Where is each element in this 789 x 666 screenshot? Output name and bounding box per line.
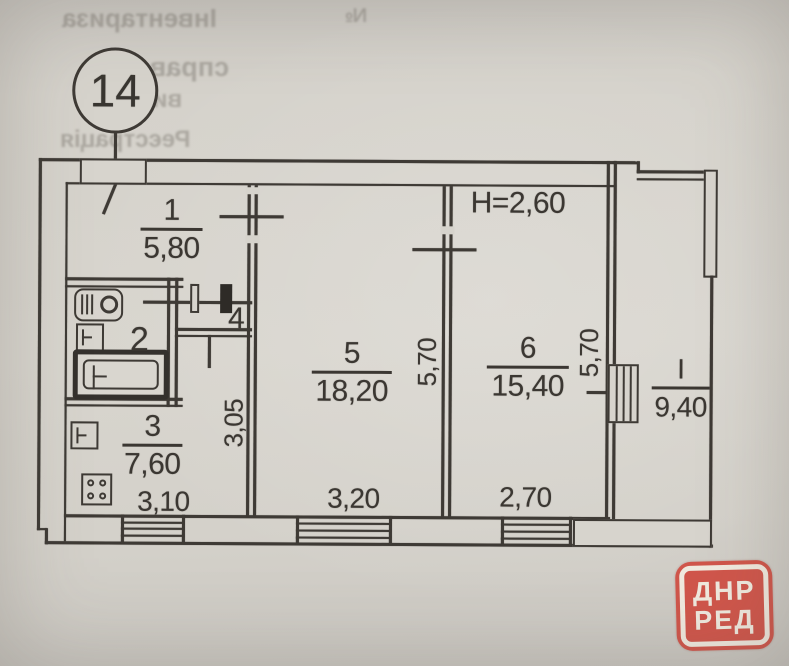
partition-line (448, 186, 452, 517)
opening-tick (220, 215, 284, 218)
balcony-rail (637, 178, 709, 180)
opening-tick (412, 248, 476, 251)
floor-plan: 14 (0, 0, 789, 666)
partition-break (245, 235, 259, 243)
label-divider (652, 386, 710, 389)
window-line (501, 524, 571, 526)
scanned-floor-plan-page: Інвентариза № справа видано Реєстрація 1… (0, 0, 789, 666)
leader-line (102, 182, 117, 214)
dim-room6-width: 2,70 (499, 482, 552, 514)
unit-number-badge: 14 (72, 47, 158, 133)
window-line (296, 529, 391, 531)
wall-line (37, 158, 41, 530)
washbasin-icon (74, 288, 123, 321)
dim-room5-depth: 5,70 (412, 302, 443, 422)
label-divider (141, 228, 203, 231)
stamp-border: ДНР РЕД (679, 564, 770, 647)
window-line (296, 536, 391, 538)
balcony-number: I (650, 353, 712, 385)
dim-kitchen-depth: 3,05 (218, 363, 249, 483)
stamp-text-line1: ДНР (692, 576, 755, 607)
window-line (121, 535, 184, 537)
wall-line (64, 182, 68, 541)
label-divider (312, 371, 392, 374)
window-line (501, 531, 571, 533)
kitchen-sink-icon (70, 421, 98, 449)
unit-number: 14 (90, 63, 141, 117)
balcony-area: 9,40 (650, 391, 712, 423)
room-label-4: 4 (228, 302, 244, 336)
room-label-1: 1 5,80 (136, 195, 206, 265)
room-label-5: 5 18,20 (310, 338, 394, 408)
watermark-stamp: ДНР РЕД (675, 560, 774, 652)
balcony-rail-post (703, 170, 718, 278)
dim-room6-depth: 5,70 (574, 293, 605, 413)
stamp-text-line2: РЕД (694, 605, 756, 636)
vent-shaft-block (80, 158, 147, 184)
bathroom-wall (65, 404, 183, 407)
wall-line (605, 161, 609, 520)
label-divider (122, 444, 182, 447)
room-number: 6 (485, 332, 571, 364)
ceiling-height-label: H=2,60 (471, 186, 566, 220)
room-area: 5,80 (136, 232, 206, 264)
door-jamb (190, 284, 199, 313)
room-label-2: 2 (130, 321, 149, 360)
bathroom-wall (65, 277, 183, 280)
door-opening-line (208, 335, 211, 368)
room-number: 3 (120, 411, 184, 443)
balcony-rail (637, 170, 709, 173)
room-area: 7,60 (120, 448, 184, 480)
balcony-slab (573, 519, 712, 548)
room-number: 1 (137, 195, 207, 227)
window-line (501, 538, 571, 540)
room-area: 15,40 (485, 370, 571, 402)
room-label-3: 3 7,60 (120, 411, 184, 481)
dim-kitchen-width: 3,10 (137, 486, 190, 518)
bathroom-wall (175, 278, 178, 407)
dim-room5-width: 3,20 (327, 483, 380, 515)
room-label-6: 6 15,40 (485, 332, 571, 402)
window-line (121, 522, 184, 524)
wall-line (612, 161, 616, 520)
balcony-label: I 9,40 (650, 353, 712, 423)
room-number: 5 (310, 338, 394, 370)
label-divider (487, 365, 569, 368)
bathtub-icon (73, 349, 169, 400)
window-line (121, 528, 184, 530)
balcony-line (614, 161, 639, 164)
partition-break (441, 226, 455, 234)
window-line (296, 522, 391, 524)
stove-icon (81, 473, 112, 505)
room-area: 18,20 (310, 375, 394, 407)
partition-break (246, 187, 260, 194)
fixture-icon (76, 323, 104, 351)
balcony-door-block (608, 364, 639, 423)
